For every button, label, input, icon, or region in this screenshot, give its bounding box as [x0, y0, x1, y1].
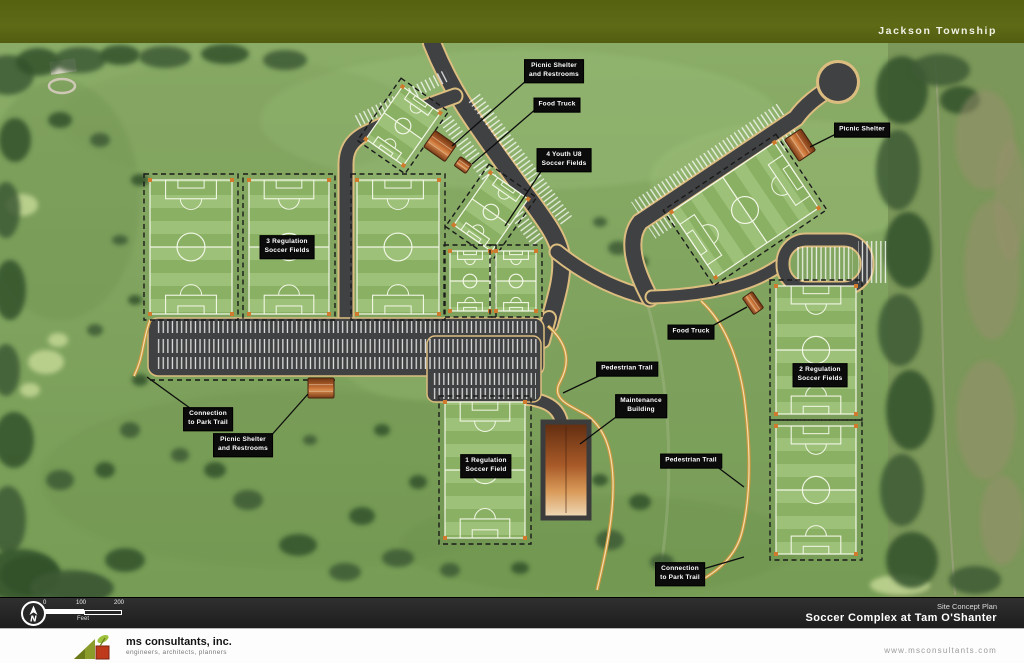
tree-cluster	[949, 566, 1001, 594]
label-pedestrian-trail-east: Pedestrian Trail	[660, 454, 722, 469]
tree-cluster	[910, 54, 970, 86]
scale-bar: 0 100 200 Feet	[44, 600, 124, 622]
tree-cluster	[886, 370, 934, 450]
parking-stalls	[797, 247, 853, 281]
tree-cluster	[382, 549, 414, 567]
project-name-label: Soccer Complex at Tam O'Shanter	[806, 612, 997, 624]
tree-cluster	[374, 424, 390, 436]
tree-cluster	[0, 118, 31, 162]
site-concept-plan-page: Jackson Township	[0, 0, 1024, 663]
tree-cluster	[592, 474, 608, 486]
ms-consultants-logo	[72, 632, 122, 662]
label-connection-park-trail-south: Connection to Park Trail	[655, 562, 705, 586]
label-youth-u8-fields: 4 Youth U8 Soccer Fields	[537, 148, 592, 172]
header-bar: Jackson Township	[0, 0, 1024, 43]
title-bar: N 0 100 200 Feet Site Concept Plan Socce…	[0, 597, 1024, 628]
tree-cluster	[46, 470, 74, 490]
soccer-field	[351, 174, 445, 320]
title-block: Site Concept Plan Soccer Complex at Tam …	[806, 602, 997, 624]
tree-cluster	[878, 294, 922, 366]
tree-cluster	[511, 562, 529, 574]
tree-cluster	[303, 435, 317, 445]
tree-cluster	[440, 563, 460, 577]
tree-cluster	[90, 133, 110, 147]
tree-cluster	[95, 462, 115, 478]
footer-bar: ms consultants, inc. engineers, architec…	[0, 628, 1024, 663]
scale-tick-100: 100	[76, 600, 86, 606]
tree-cluster	[120, 422, 140, 438]
soccer-field	[444, 245, 496, 317]
label-food-truck-east: Food Truck	[667, 325, 714, 340]
company-name: ms consultants, inc.	[126, 636, 232, 648]
label-food-truck-north: Food Truck	[533, 98, 580, 113]
soccer-field	[770, 420, 862, 560]
label-maintenance-building: Maintenance Building	[615, 394, 667, 418]
tree-cluster	[876, 130, 920, 210]
tree-cluster	[139, 46, 191, 68]
north-letter: N	[30, 615, 37, 624]
plan-type-label: Site Concept Plan	[806, 602, 997, 611]
tree-cluster	[16, 48, 60, 76]
parking-stalls	[858, 241, 888, 283]
parking-stalls	[432, 373, 536, 385]
parking-stalls	[156, 339, 538, 353]
tree-cluster	[201, 44, 249, 64]
soccer-field	[770, 280, 862, 420]
label-connection-park-trail-west: Connection to Park Trail	[183, 407, 233, 431]
tree-cluster	[112, 235, 128, 245]
label-3-regulation-fields: 3 Regulation Soccer Fields	[260, 235, 315, 259]
company-website: www.msconsultants.com	[884, 646, 997, 655]
tree-cluster	[409, 475, 427, 489]
tree-cluster	[128, 295, 142, 305]
picnic-shelter	[308, 378, 334, 398]
company-block: ms consultants, inc. engineers, architec…	[126, 636, 232, 656]
tree-cluster	[329, 563, 361, 581]
label-2-regulation-fields: 2 Regulation Soccer Fields	[793, 363, 848, 387]
parking-stalls	[156, 321, 538, 333]
tree-cluster	[87, 324, 103, 336]
parking-stalls	[432, 388, 536, 399]
label-picnic-shelter-east: Picnic Shelter	[834, 123, 890, 138]
tree-cluster	[54, 47, 106, 73]
tree-cluster	[886, 532, 938, 588]
tree-cluster	[48, 112, 72, 128]
soccer-field	[144, 174, 238, 320]
scale-bar-open-segment	[84, 610, 122, 615]
tree-cluster	[880, 454, 924, 526]
tree-cluster	[233, 490, 263, 510]
site-plan-map: Picnic Shelter and Restrooms Food Truck …	[0, 43, 1024, 597]
tree-cluster	[629, 494, 651, 510]
tree-cluster	[131, 174, 149, 186]
tree-cluster	[204, 462, 226, 478]
company-tagline: engineers, architects, planners	[126, 649, 232, 656]
parking-stalls	[156, 357, 538, 369]
tree-cluster	[884, 212, 932, 288]
tree-cluster	[349, 507, 375, 525]
label-1-regulation-field: 1 Regulation Soccer Field	[460, 454, 511, 478]
tree-cluster	[171, 448, 189, 462]
scale-tick-200: 200	[114, 600, 124, 606]
label-picnic-shelter-restrooms-west: Picnic Shelter and Restrooms	[213, 433, 273, 457]
soccer-field	[490, 245, 542, 317]
label-pedestrian-trail-mid: Pedestrian Trail	[596, 362, 658, 377]
label-picnic-shelter-restrooms-north: Picnic Shelter and Restrooms	[524, 59, 584, 83]
tree-cluster	[105, 548, 145, 572]
tree-cluster	[593, 217, 607, 227]
scale-bar-filled-segment	[44, 609, 84, 614]
maintenance-building	[543, 422, 589, 518]
tree-cluster	[263, 50, 307, 70]
township-title: Jackson Township	[878, 25, 997, 37]
scale-unit-label: Feet	[44, 616, 122, 622]
scale-tick-0: 0	[43, 600, 46, 606]
tree-cluster	[100, 45, 140, 65]
cul-de-sac	[819, 63, 857, 101]
tree-cluster	[279, 534, 317, 556]
scale-bar-graphic	[44, 609, 122, 614]
scale-ticks: 0 100 200	[44, 600, 124, 607]
